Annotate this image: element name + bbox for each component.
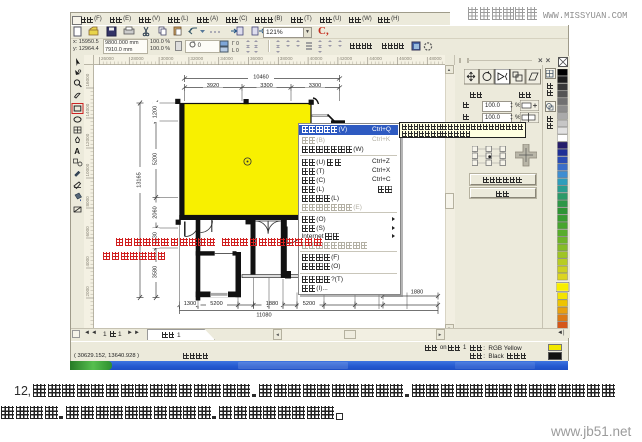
svg-text:8000: 8000 [85,196,90,207]
svg-text:44000: 44000 [369,56,382,61]
svg-text:1300: 1300 [184,301,196,307]
svg-text:42000: 42000 [339,56,352,61]
svg-text:28000: 28000 [131,56,144,61]
svg-text:48000: 48000 [429,56,442,61]
svg-text:2000: 2000 [85,286,90,297]
svg-text:26000: 26000 [101,56,114,61]
svg-text:46000: 46000 [399,56,412,61]
svg-text:1200: 1200 [153,106,159,118]
svg-text:30000: 30000 [161,56,174,61]
svg-text:3300: 3300 [309,83,321,89]
svg-text:16000: 16000 [85,73,90,86]
svg-text:36000: 36000 [250,56,263,61]
svg-text:38000: 38000 [280,56,293,61]
svg-text:5200: 5200 [210,301,222,307]
svg-text:11080: 11080 [256,313,271,319]
svg-text:13165: 13165 [137,172,143,188]
svg-text:14000: 14000 [85,103,90,116]
svg-text:1880: 1880 [266,301,278,307]
svg-text:40000: 40000 [310,56,323,61]
svg-text:32000: 32000 [190,56,203,61]
svg-text:34000: 34000 [220,56,233,61]
svg-text:L 0: L 0 [232,48,239,53]
svg-text:3920: 3920 [207,83,219,89]
svg-text:1880: 1880 [411,290,423,296]
svg-text:5200: 5200 [153,153,159,165]
svg-text:6000: 6000 [85,226,90,237]
svg-text:5200: 5200 [303,301,315,307]
svg-text:4000: 4000 [85,256,90,267]
svg-text:10460: 10460 [253,74,269,80]
svg-text:2060: 2060 [153,206,159,218]
svg-text:A: A [74,147,80,156]
svg-text:Γ 0: Γ 0 [232,41,239,47]
svg-text:12000: 12000 [85,133,90,146]
svg-text:10000: 10000 [85,163,90,176]
svg-text:3300: 3300 [260,83,272,89]
svg-text:3580: 3580 [153,266,159,278]
